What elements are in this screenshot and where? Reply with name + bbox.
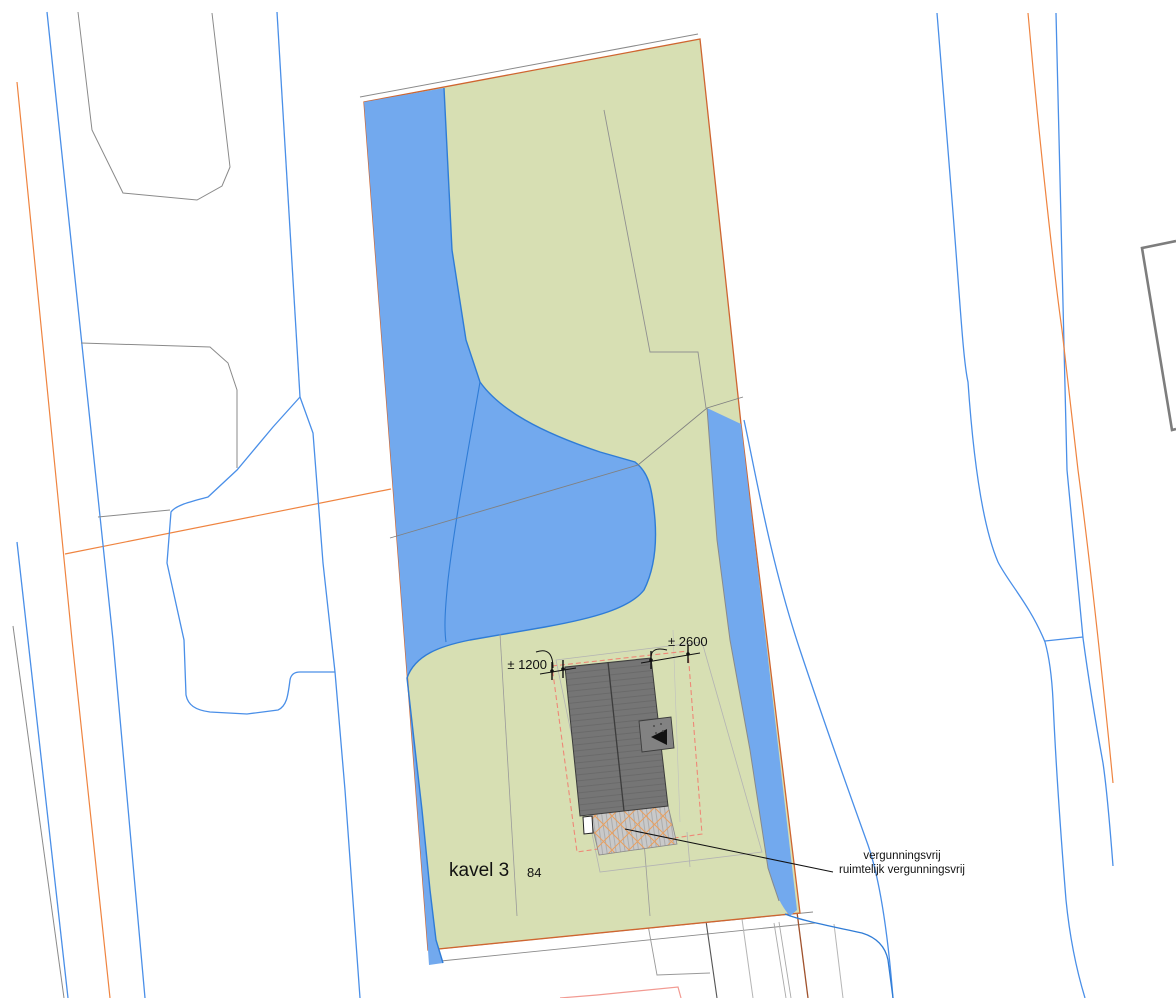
- dimension-dot: [649, 658, 653, 662]
- ditch-bank-west: [300, 397, 360, 998]
- ditch-bank-hook: [167, 397, 335, 714]
- dimension-dot: [550, 669, 554, 673]
- site-plan-canvas: ± 1200 ± 2600 kavel 3 84 vergunningsvrij…: [0, 0, 1176, 998]
- bottom-parcel-line-5: [779, 922, 791, 998]
- parcel-kavel-3: ± 1200 ± 2600 kavel 3 84: [360, 34, 893, 998]
- building-outline-neighbor: [1142, 241, 1176, 430]
- ditch-end-connector: [1045, 637, 1083, 641]
- roof-dot: [653, 725, 655, 727]
- water-outlet-curve: [785, 914, 893, 998]
- ditch-line-blue-east-1: [937, 13, 1085, 998]
- field-outline-bottom: [98, 510, 170, 517]
- entrance-step: [583, 816, 593, 834]
- cadastral-line-orange-branch: [65, 489, 391, 554]
- roof-dot: [662, 730, 664, 732]
- ditch-line-blue-1: [47, 12, 145, 998]
- bottom-parcel-line-6: [834, 924, 843, 998]
- roof-dot: [655, 732, 657, 734]
- road-loop-outline: [78, 12, 230, 200]
- dimension-dot: [686, 652, 690, 656]
- bottom-parcel-line-4: [774, 923, 786, 998]
- field-outline: [81, 343, 237, 468]
- annotation-line-1: vergunningsvrij: [863, 850, 940, 862]
- dimension-1200-label: ± 1200: [507, 657, 547, 672]
- bottom-parcel-line-3: [742, 919, 753, 998]
- ditch-line-blue-3: [277, 12, 300, 397]
- plot-label: kavel 3: [449, 860, 509, 881]
- cadastral-line-orange-left: [17, 82, 110, 998]
- parcel-line-gray-1: [13, 626, 64, 998]
- bottom-parcel-line-1: [648, 925, 710, 975]
- site-plan-drawing: ± 1200 ± 2600 kavel 3 84 vergunningsvrij…: [0, 0, 1176, 998]
- boundary-brown-continuation: [797, 912, 808, 998]
- surrounding-lines-right: [744, 13, 1176, 998]
- zone-outline-pink: [560, 987, 681, 998]
- ditch-line-blue-2: [17, 542, 68, 998]
- annotation-line-2: ruimtelijk vergunningsvrij: [839, 864, 965, 876]
- ditch-line-blue-east-2: [1056, 13, 1113, 866]
- dimension-dot: [561, 667, 565, 671]
- parcel-number-label: 84: [527, 865, 541, 880]
- roof-dot: [660, 723, 662, 725]
- cadastral-line-orange-east: [1028, 13, 1113, 783]
- bottom-parcel-line-2: [705, 914, 717, 998]
- surrounding-lines-left: [13, 12, 391, 998]
